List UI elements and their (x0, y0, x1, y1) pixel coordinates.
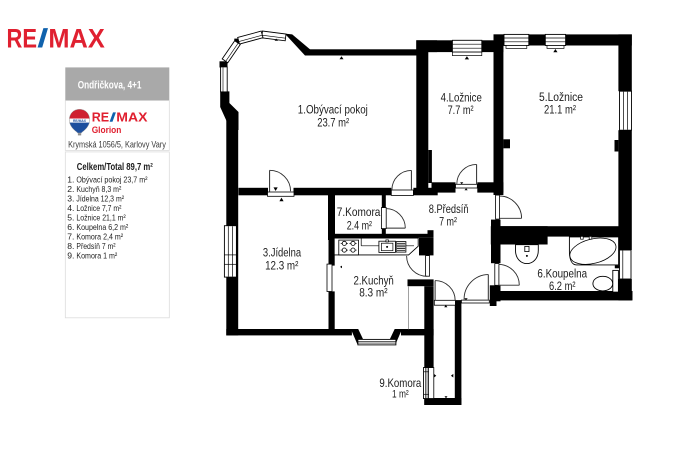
svg-text:Glorion: Glorion (92, 124, 122, 135)
svg-text:Ondřičkova, 4+1: Ondřičkova, 4+1 (78, 80, 142, 92)
svg-text:7.Komora: 7.Komora (337, 205, 381, 219)
svg-text:RE/MAX: RE/MAX (73, 119, 87, 123)
svg-text:6.: 6. (67, 222, 74, 232)
svg-text:21.1 m²: 21.1 m² (544, 103, 576, 117)
svg-text:MAX: MAX (116, 111, 148, 125)
svg-text:6.2 m²: 6.2 m² (549, 279, 576, 293)
svg-text:5.: 5. (67, 213, 74, 223)
svg-text:Ložnice 7,7 m²: Ložnice 7,7 m² (76, 203, 121, 213)
svg-text:Jídelna 12,3 m²: Jídelna 12,3 m² (76, 193, 124, 203)
svg-text:MAX: MAX (48, 23, 105, 53)
svg-text:Předsíň 7 m²: Předsíň 7 m² (76, 241, 115, 251)
svg-text:2.: 2. (67, 184, 74, 194)
svg-text:Celkem/Total 89,7 m²: Celkem/Total 89,7 m² (77, 162, 154, 173)
svg-text:4.: 4. (67, 203, 74, 213)
svg-text:3.: 3. (67, 193, 74, 203)
svg-text:RE: RE (7, 23, 38, 53)
svg-text:12.3 m²: 12.3 m² (265, 259, 298, 273)
svg-text:1.: 1. (67, 174, 74, 184)
svg-text:1 m²: 1 m² (392, 389, 409, 401)
svg-text:8.3 m²: 8.3 m² (359, 285, 387, 299)
svg-text:Ložnice 21,1 m²: Ložnice 21,1 m² (76, 213, 125, 223)
svg-text:Koupelna 6,2 m²: Koupelna 6,2 m² (76, 222, 128, 232)
svg-text:3.Jídelna: 3.Jídelna (263, 245, 301, 259)
svg-text:Kuchyň 8,3 m²: Kuchyň 8,3 m² (76, 184, 121, 194)
svg-text:2.4 m²: 2.4 m² (347, 219, 372, 233)
svg-text:4.Ložnice: 4.Ložnice (441, 90, 482, 104)
svg-text:7.7 m²: 7.7 m² (448, 103, 474, 117)
svg-text:23.7 m²: 23.7 m² (317, 115, 349, 129)
svg-text:Krymská 1056/5, Karlovy Vary: Krymská 1056/5, Karlovy Vary (68, 138, 166, 149)
svg-text:7 m²: 7 m² (439, 215, 457, 229)
svg-text:RE: RE (92, 111, 109, 125)
svg-text:8.: 8. (67, 241, 74, 251)
svg-text:9.: 9. (67, 251, 74, 261)
svg-text:Obývací pokoj 23,7 m²: Obývací pokoj 23,7 m² (76, 174, 147, 184)
svg-text:Komora 2,4 m²: Komora 2,4 m² (76, 232, 123, 242)
svg-text:Komora 1 m²: Komora 1 m² (76, 251, 117, 261)
svg-text:7.: 7. (67, 232, 74, 242)
